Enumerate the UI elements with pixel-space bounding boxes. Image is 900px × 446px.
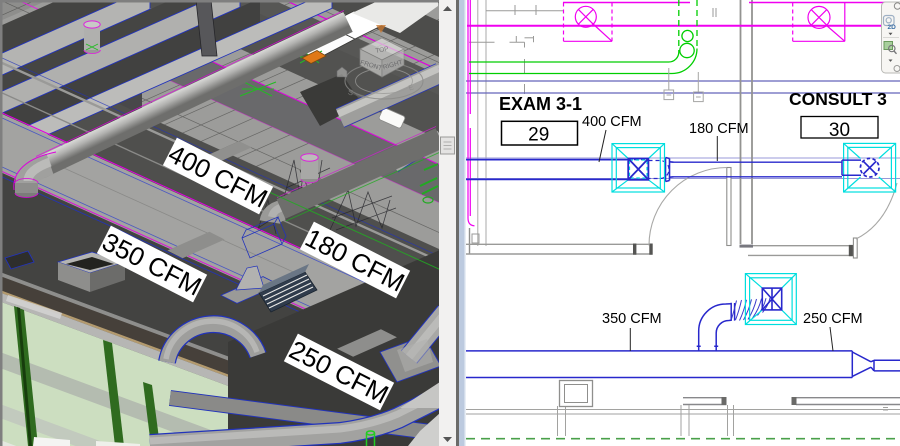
svg-text:30: 30: [829, 120, 850, 141]
svg-text:29: 29: [528, 125, 549, 146]
svg-text:CONSULT 3: CONSULT 3: [789, 89, 887, 109]
svg-text:180 CFM: 180 CFM: [689, 121, 749, 137]
svg-text:350 CFM: 350 CFM: [602, 311, 662, 327]
svg-text:EXAM 3-1: EXAM 3-1: [499, 94, 582, 114]
svg-text:400 CFM: 400 CFM: [582, 114, 642, 130]
svg-text:250 CFM: 250 CFM: [803, 311, 863, 327]
svg-text:2D: 2D: [888, 24, 897, 31]
